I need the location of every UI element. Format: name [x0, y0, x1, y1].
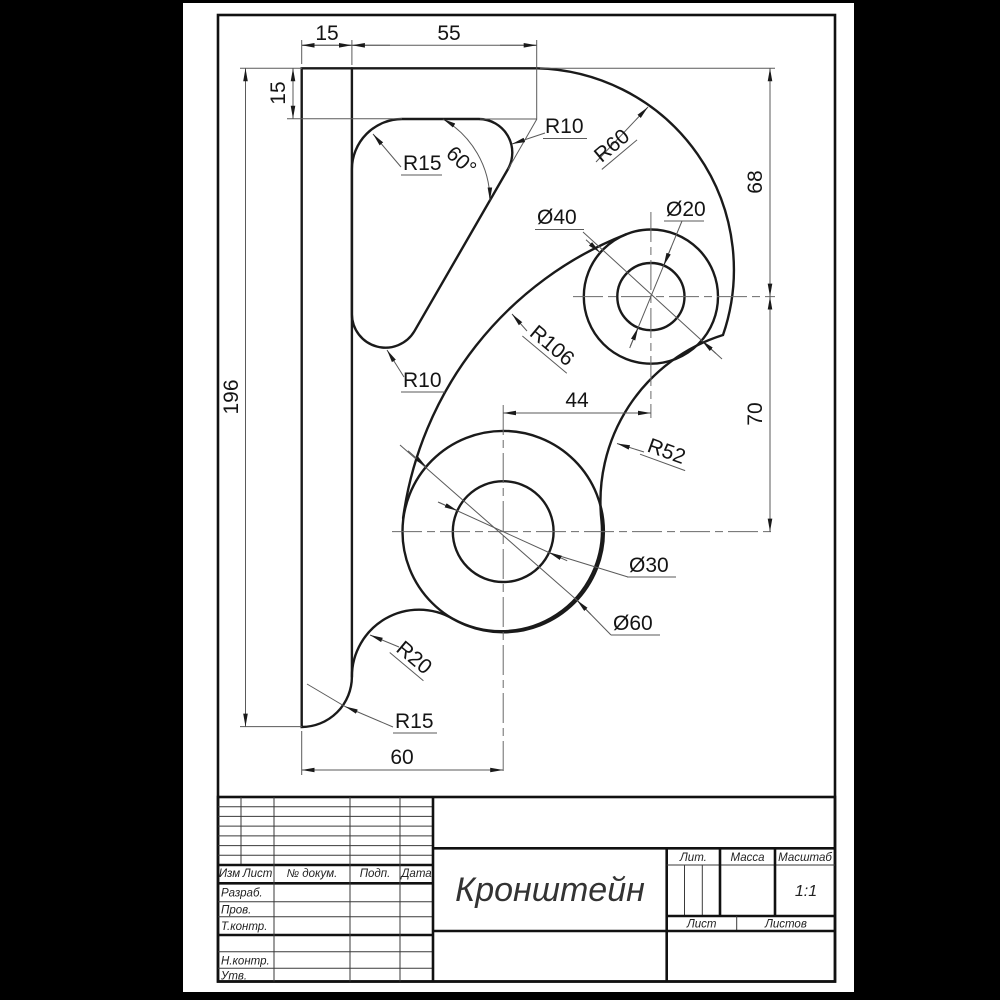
label-r10-top: R10 — [545, 115, 584, 138]
label-r15-bottom: R15 — [395, 710, 434, 733]
dim-68: 68 — [744, 170, 767, 193]
row-utv: Утв. — [220, 971, 247, 983]
header-listov: Листов — [764, 919, 807, 931]
header-masshtab: Масштаб — [778, 852, 832, 864]
label-r15-top: R15 — [403, 152, 442, 175]
label-d60: Ø60 — [613, 612, 653, 635]
row-prov: Пров. — [221, 905, 251, 917]
label-d40: Ø40 — [537, 206, 577, 229]
header-list: Лист — [686, 919, 717, 931]
col-list: Лист — [242, 868, 273, 880]
label-d20: Ø20 — [666, 198, 706, 221]
header-lit: Лит. — [679, 852, 707, 864]
col-izm: Изм — [219, 868, 240, 880]
dim-44: 44 — [565, 389, 589, 412]
engineering-drawing-sheet: 15 55 15 196 68 70 44 60 60° R15 R10 R60… — [0, 0, 1000, 1000]
header-massa: Масса — [730, 852, 764, 864]
row-tkontr: Т.контр. — [221, 921, 267, 933]
dim-15-top: 15 — [315, 22, 338, 45]
dim-70: 70 — [744, 402, 767, 425]
col-ndokum: № докум. — [287, 868, 338, 880]
dim-60-bottom: 60 — [390, 746, 413, 769]
col-data: Дата — [399, 868, 431, 880]
col-podp: Подп. — [360, 868, 391, 880]
label-d30: Ø30 — [629, 554, 669, 577]
dim-196: 196 — [220, 379, 243, 414]
scale-value: 1:1 — [795, 883, 817, 900]
row-razrab: Разраб. — [221, 888, 263, 900]
dim-55: 55 — [437, 22, 460, 45]
part-title: Кронштейн — [455, 871, 645, 909]
label-r10-bottom: R10 — [403, 369, 442, 392]
row-nkontr: Н.контр. — [221, 956, 270, 968]
dim-15-left: 15 — [267, 81, 290, 104]
